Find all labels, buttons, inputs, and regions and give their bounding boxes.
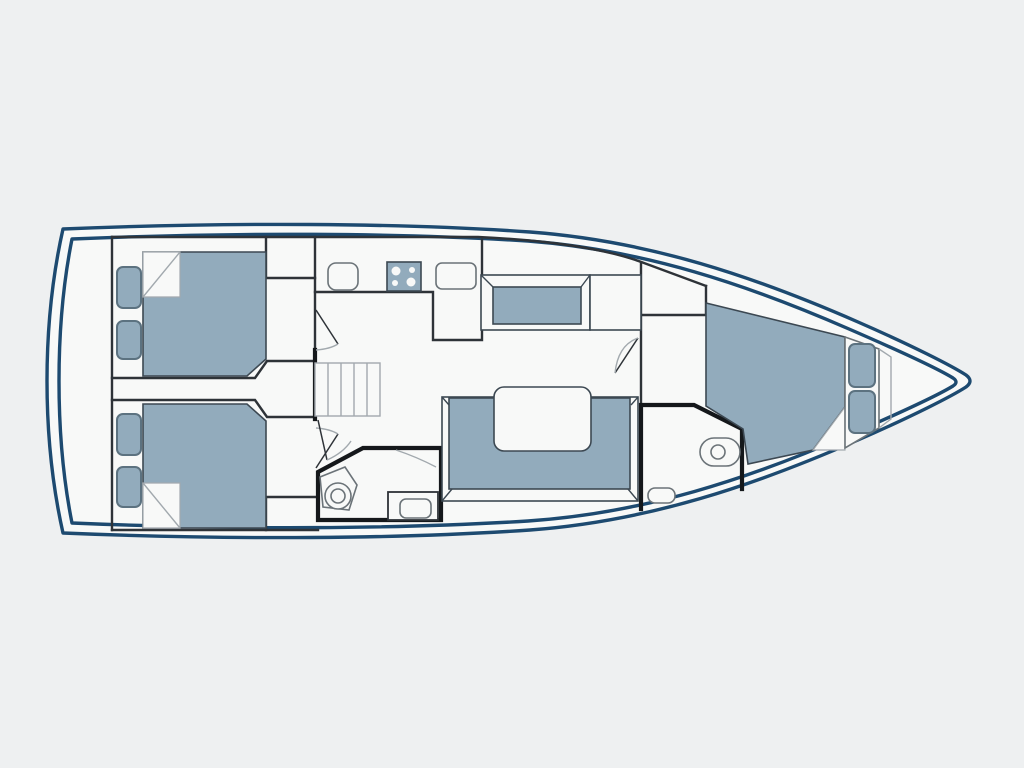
side-bench-cushion	[493, 287, 581, 324]
galley-sink-right	[436, 263, 476, 289]
galley	[328, 262, 476, 291]
step-pad	[648, 488, 675, 503]
companionway-stairs	[315, 363, 380, 416]
toilet-bowl-icon	[331, 489, 345, 503]
aft-port-pillow-2	[117, 321, 141, 359]
bow-pillow-1	[849, 344, 875, 387]
stairs-outline	[315, 363, 380, 416]
yacht-floor-plan	[0, 0, 1024, 768]
bow-pillow-2	[849, 391, 875, 433]
bath-sink	[400, 499, 431, 518]
bow-toilet-icon	[711, 445, 725, 459]
aft-starboard-pillow-2	[117, 467, 141, 507]
stove-burner-icon	[407, 278, 416, 287]
stove-burner-icon	[409, 267, 415, 273]
stove-burner-icon	[392, 267, 401, 276]
aft-starboard-pillow-1	[117, 414, 141, 455]
stove	[387, 262, 421, 291]
stove-burner-icon	[392, 280, 398, 286]
salon-cabinet	[590, 275, 641, 330]
aft-port-pillow-1	[117, 267, 141, 308]
salon-table	[494, 387, 591, 451]
galley-sink-left	[328, 263, 358, 290]
